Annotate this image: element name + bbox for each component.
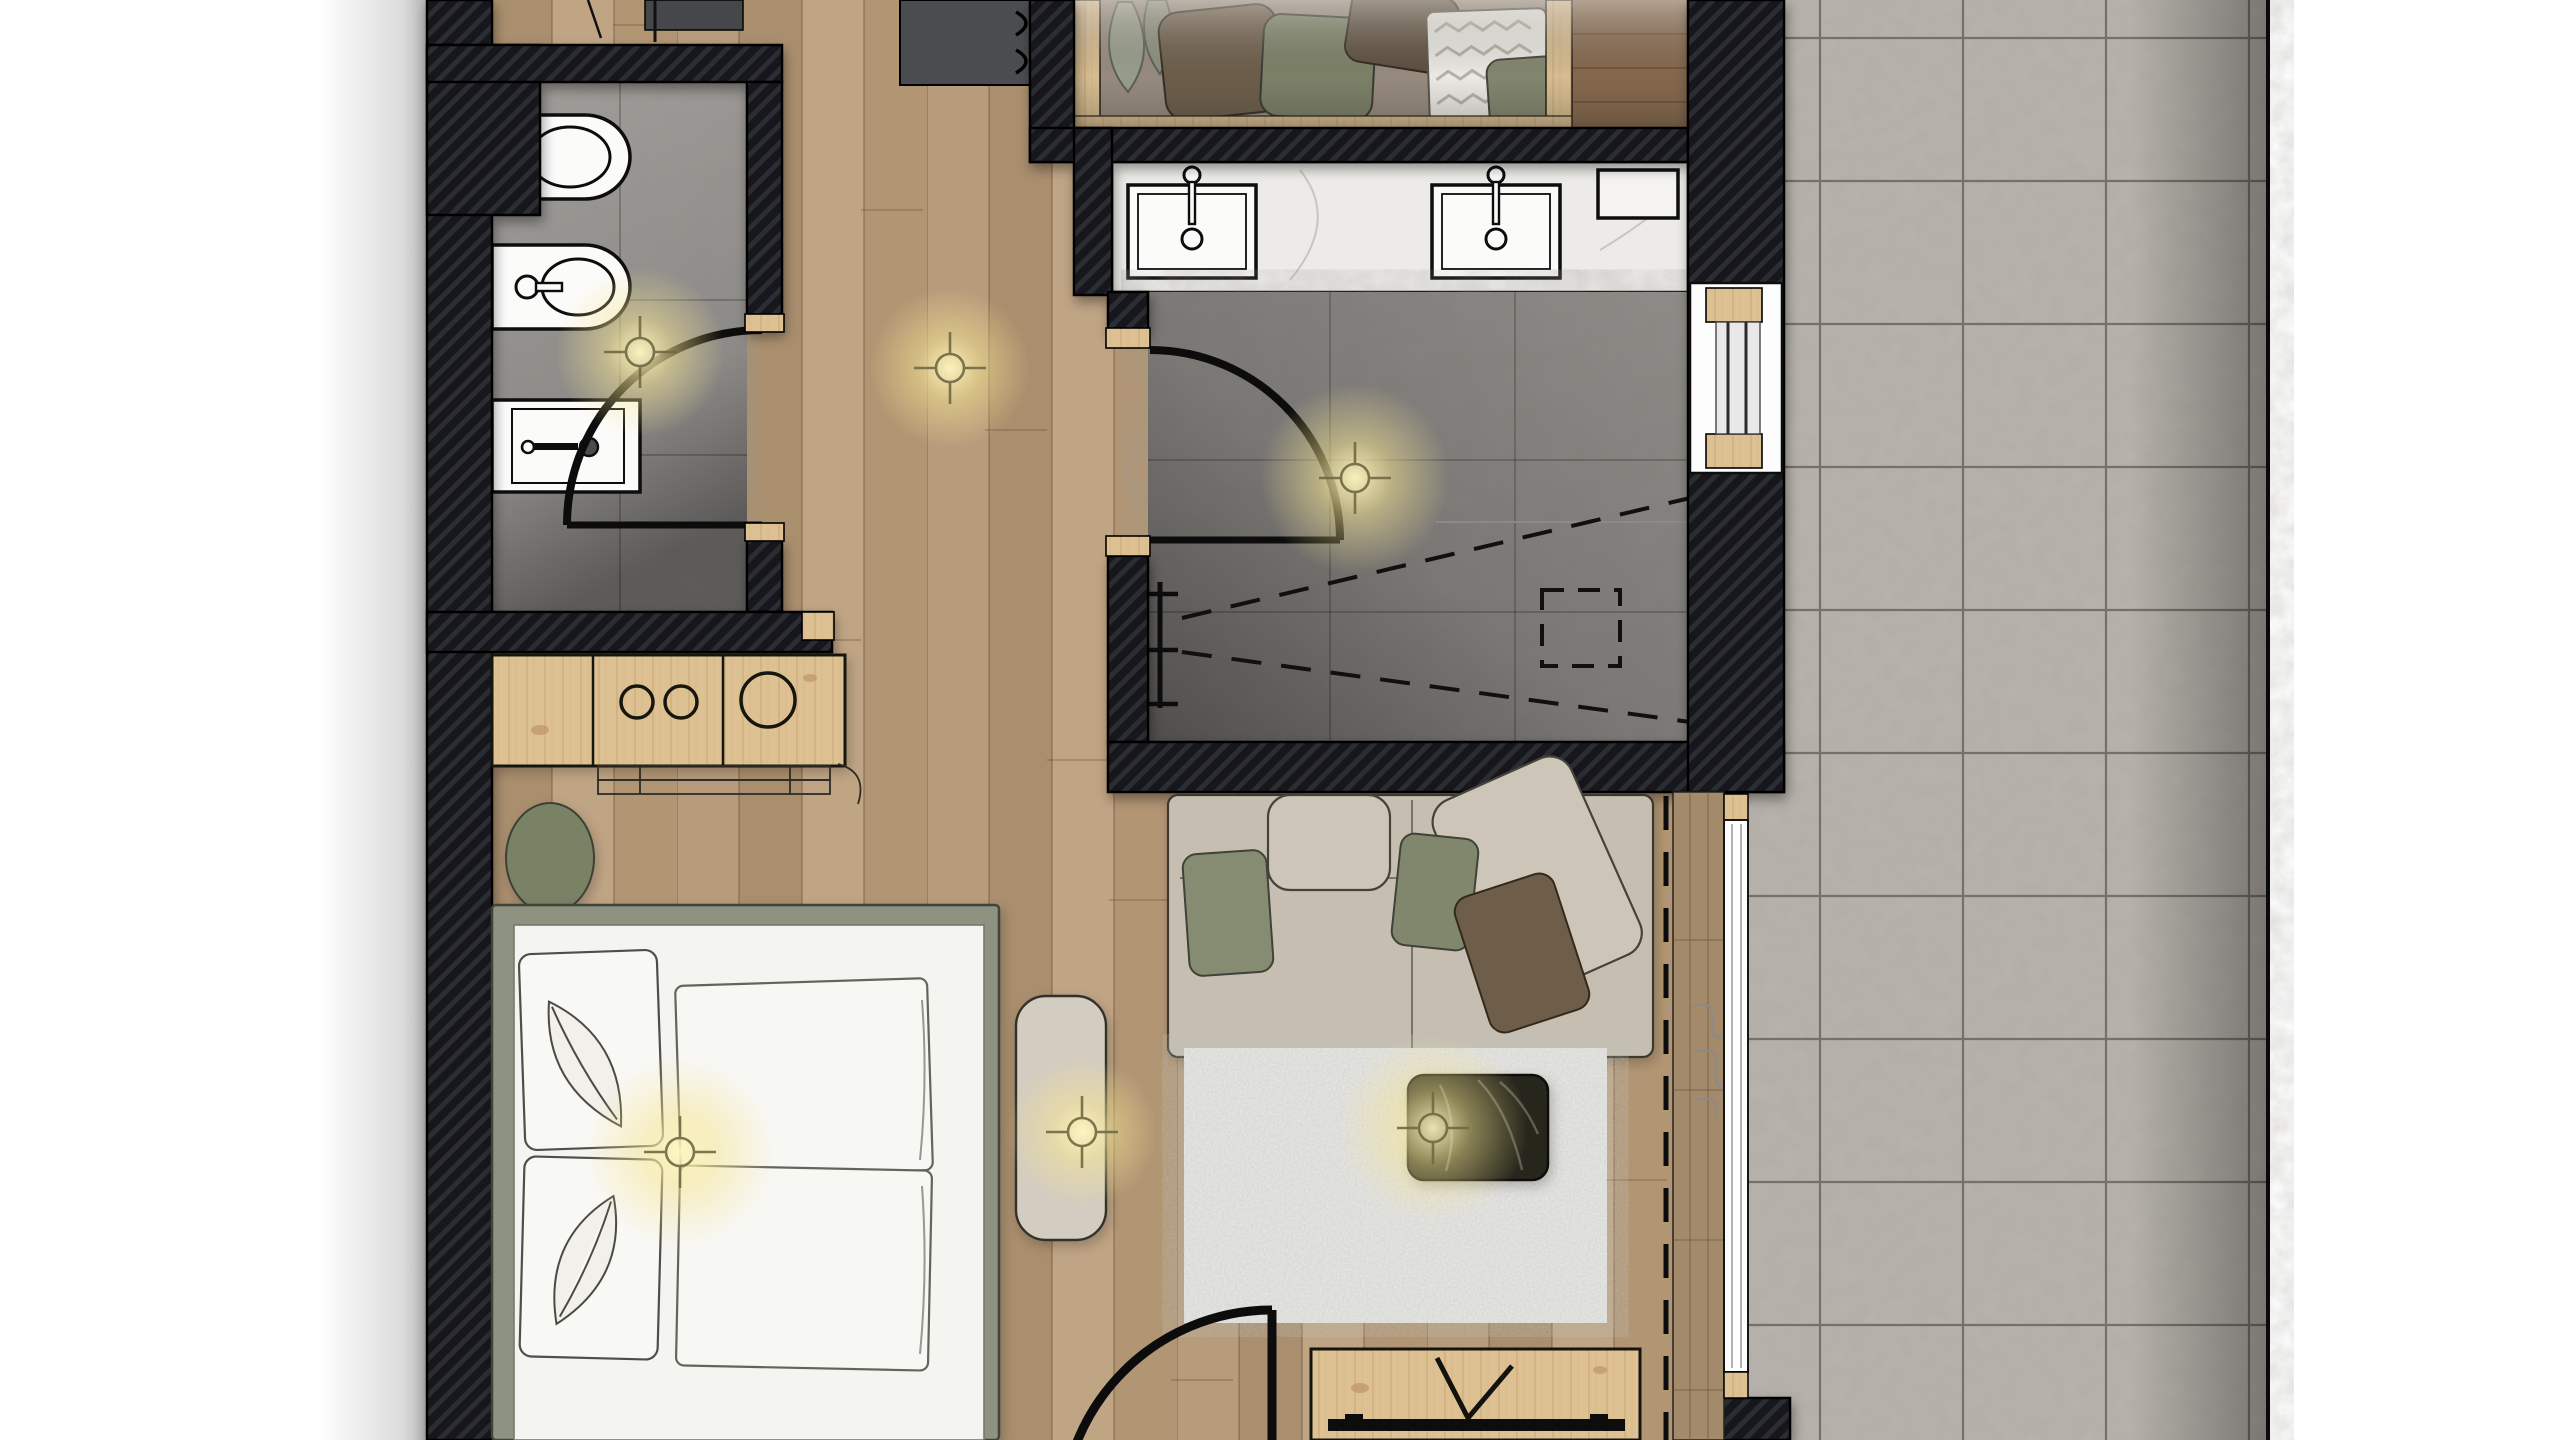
pouf-top [506, 803, 594, 913]
wall-wc-top [427, 45, 782, 82]
ceiling-light-shower [1260, 383, 1450, 573]
ceiling-light-bench [1007, 1057, 1157, 1207]
terrace-edge-shadow [2130, 0, 2268, 1440]
tv-sideboard [1311, 1349, 1640, 1440]
terrace [1748, 0, 2270, 1440]
entry-mat [645, 0, 743, 30]
facade-glazing [1666, 792, 1748, 1440]
wall-closet-bottom [1030, 128, 1688, 162]
sofa-pillow-green [1182, 849, 1274, 977]
ceiling-light-wc [555, 267, 725, 437]
faucet-icon [1184, 167, 1200, 183]
wall-wc-right-upper [747, 82, 782, 330]
ceiling-light-bed [585, 1057, 775, 1247]
drain-icon [1486, 229, 1506, 249]
wall-shower-bottom [1108, 742, 1784, 792]
plan-left-shadow [318, 0, 427, 1440]
vanity-area [1112, 162, 1688, 292]
minibar-console [492, 655, 845, 766]
wall-shower-left-lower [1108, 556, 1148, 742]
sofa-back-cushion [1268, 795, 1390, 890]
tv [1328, 1419, 1625, 1431]
sofa [1168, 749, 1653, 1057]
vanity-sink-right [1432, 167, 1560, 278]
ceiling-light-hallway [870, 288, 1030, 448]
wall-shower-left-upper [1108, 292, 1148, 332]
wall-wc-bottom [427, 612, 832, 652]
glazing-mullion [1724, 820, 1748, 1372]
wardrobe-closet [1072, 0, 1688, 128]
storage-niche [1598, 170, 1678, 218]
floor-plan [0, 0, 2560, 1440]
ceiling-light-coffee-table [1338, 1033, 1528, 1223]
terrace-edge-line [2266, 0, 2270, 1440]
entry-bench [900, 0, 1030, 85]
bathroom-window [1690, 283, 1782, 473]
floor-plan-canvas [0, 0, 2560, 1440]
wall-vanity-cheek [1074, 128, 1112, 295]
drain-icon [1182, 229, 1202, 249]
faucet-icon [1488, 167, 1504, 183]
wall-wc-right-lower [747, 540, 782, 612]
vanity-sink-left [1128, 167, 1256, 278]
